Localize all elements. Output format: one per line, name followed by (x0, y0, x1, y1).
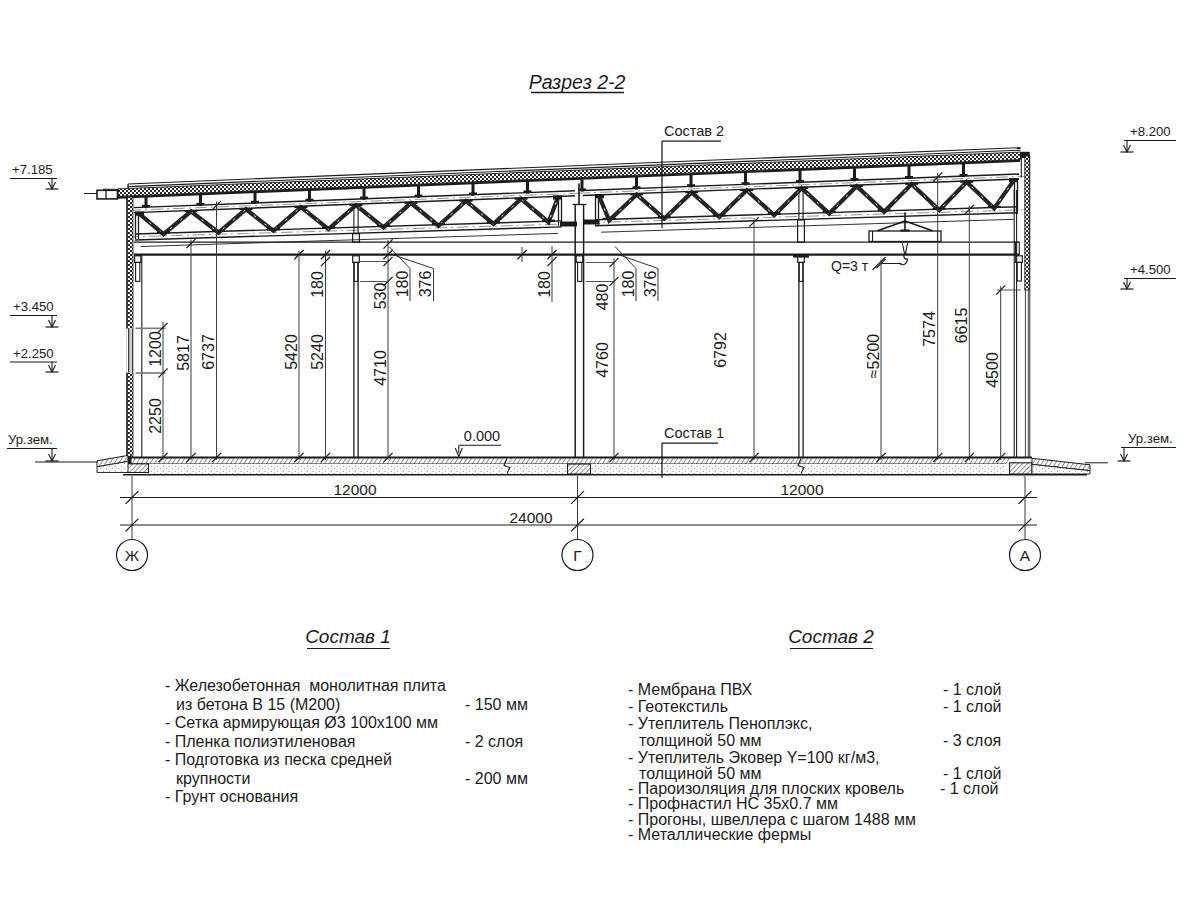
svg-text:толщиной 50 мм: толщиной 50 мм (639, 732, 762, 749)
svg-text:Ж: Ж (125, 547, 140, 564)
svg-text:≈5200: ≈5200 (865, 334, 882, 378)
svg-text:5240: 5240 (309, 334, 326, 370)
svg-text:- 1 слой: - 1 слой (940, 780, 998, 797)
svg-text:- 2 слоя: - 2 слоя (465, 733, 523, 750)
svg-text:А: А (1020, 547, 1031, 564)
svg-text:- Сетка армирующая Ø3 100х100: - Сетка армирующая Ø3 100х100 мм (165, 714, 438, 731)
svg-text:+2.250: +2.250 (13, 346, 54, 361)
svg-text:- Подготовка из песка средней: - Подготовка из песка средней (165, 751, 392, 768)
svg-text:+7.185: +7.185 (12, 162, 53, 177)
svg-text:из бетона В 15 (М200): из бетона В 15 (М200) (176, 696, 340, 713)
svg-text:Г: Г (573, 547, 582, 564)
svg-text:- Мембрана ПВХ: - Мембрана ПВХ (628, 681, 753, 698)
svg-text:- 3 слоя: - 3 слоя (943, 732, 1001, 749)
svg-text:5420: 5420 (283, 334, 300, 370)
svg-text:Состав 1: Состав 1 (305, 626, 391, 647)
svg-text:Ур.зем.: Ур.зем. (1128, 431, 1173, 446)
svg-text:6615: 6615 (953, 308, 970, 344)
svg-text:1200: 1200 (147, 331, 164, 367)
svg-text:6737: 6737 (200, 334, 217, 370)
svg-text:2250: 2250 (147, 398, 164, 434)
svg-text:Состав 2: Состав 2 (788, 626, 874, 647)
svg-text:- 1 слой: - 1 слой (943, 681, 1001, 698)
svg-text:12000: 12000 (333, 481, 376, 498)
svg-text:6792: 6792 (712, 332, 729, 368)
svg-text:0.000: 0.000 (464, 428, 500, 444)
svg-text:24000: 24000 (509, 509, 552, 526)
svg-text:376: 376 (417, 271, 434, 298)
svg-text:530: 530 (372, 283, 389, 310)
svg-text:+4.500: +4.500 (1130, 262, 1171, 277)
svg-text:4760: 4760 (594, 342, 611, 378)
svg-text:- 1 слой: - 1 слой (943, 698, 1001, 715)
svg-text:5817: 5817 (175, 335, 192, 371)
svg-text:- 150 мм: - 150 мм (465, 696, 528, 713)
svg-text:Разрез 2-2: Разрез 2-2 (529, 71, 626, 93)
svg-text:376: 376 (642, 271, 659, 298)
svg-text:- Утеплитель Эковер Y=100 кг/м: - Утеплитель Эковер Y=100 кг/м3, (628, 749, 879, 766)
svg-text:4710: 4710 (372, 350, 389, 386)
svg-text:180: 180 (394, 271, 411, 298)
svg-text:- Утеплитель Пеноплэкс,: - Утеплитель Пеноплэкс, (628, 715, 812, 732)
svg-text:Состав 1: Состав 1 (664, 425, 724, 441)
svg-text:+3.450: +3.450 (13, 299, 54, 314)
svg-text:Состав 2: Состав 2 (664, 123, 724, 139)
svg-text:480: 480 (594, 284, 611, 311)
svg-text:- 200 мм: - 200 мм (465, 770, 528, 787)
svg-text:- Геотекстиль: - Геотекстиль (628, 698, 728, 715)
svg-text:180: 180 (309, 271, 326, 298)
svg-text:Ур.зем.: Ур.зем. (8, 432, 53, 447)
svg-text:180: 180 (536, 271, 553, 298)
svg-text:12000: 12000 (780, 481, 823, 498)
svg-text:+8.200: +8.200 (1130, 124, 1171, 139)
svg-text:7574: 7574 (921, 311, 938, 347)
svg-text:- Металлические фермы: - Металлические фермы (628, 826, 811, 843)
svg-text:- Пленка полиэтиленовая: - Пленка полиэтиленовая (165, 733, 355, 750)
svg-text:- Грунт основания: - Грунт основания (165, 788, 298, 805)
svg-text:4500: 4500 (984, 352, 1001, 388)
svg-text:180: 180 (620, 271, 637, 298)
svg-text:крупности: крупности (176, 770, 250, 787)
svg-text:- Железобетонная монолитная п: - Железобетонная монолитная плита (165, 677, 446, 694)
svg-text:Q=3 т: Q=3 т (831, 258, 869, 274)
